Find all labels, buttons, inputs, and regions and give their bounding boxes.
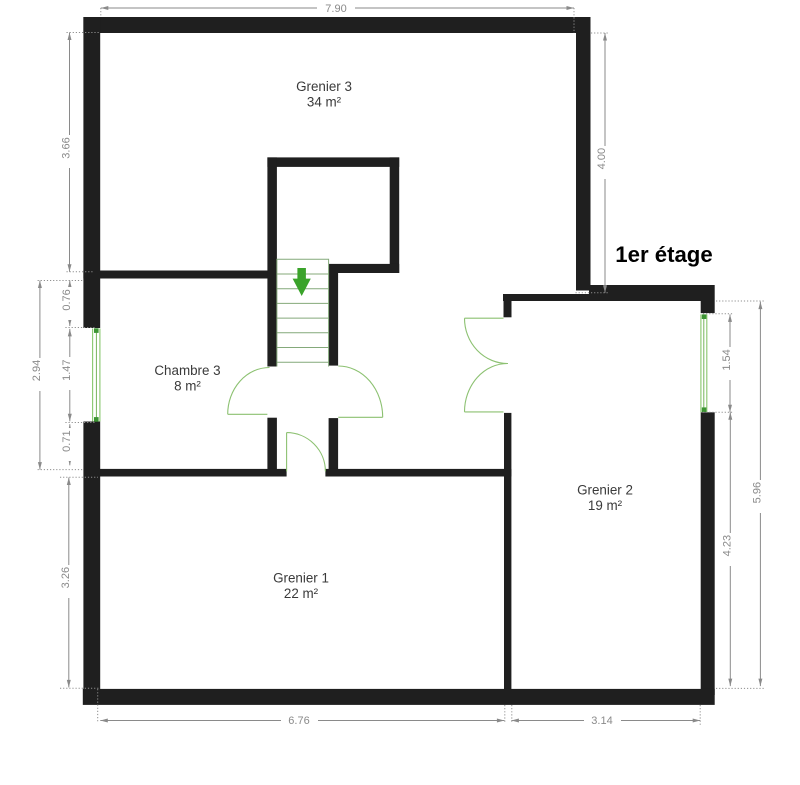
svg-text:4.23: 4.23 <box>721 535 733 556</box>
svg-text:34 m²: 34 m² <box>307 95 342 110</box>
svg-text:3.66: 3.66 <box>61 137 73 158</box>
svg-text:Grenier 3: Grenier 3 <box>296 79 352 94</box>
svg-text:1.47: 1.47 <box>61 359 73 380</box>
svg-text:1.54: 1.54 <box>721 349 733 370</box>
svg-text:2.94: 2.94 <box>31 360 43 381</box>
svg-text:Chambre 3: Chambre 3 <box>154 363 220 378</box>
svg-text:8 m²: 8 m² <box>174 379 201 394</box>
svg-text:3.14: 3.14 <box>591 715 612 727</box>
svg-text:Grenier 2: Grenier 2 <box>577 483 633 498</box>
svg-text:Grenier 1: Grenier 1 <box>273 571 329 586</box>
svg-text:6.76: 6.76 <box>288 715 309 727</box>
svg-text:5.96: 5.96 <box>751 482 763 503</box>
svg-text:1er étage: 1er étage <box>615 242 712 267</box>
svg-text:0.71: 0.71 <box>61 430 73 451</box>
svg-text:19 m²: 19 m² <box>588 498 623 513</box>
svg-text:0.76: 0.76 <box>61 289 73 310</box>
svg-text:7.90: 7.90 <box>325 3 346 15</box>
svg-text:22 m²: 22 m² <box>284 586 319 601</box>
svg-text:3.26: 3.26 <box>60 567 72 588</box>
svg-text:4.00: 4.00 <box>596 148 608 169</box>
